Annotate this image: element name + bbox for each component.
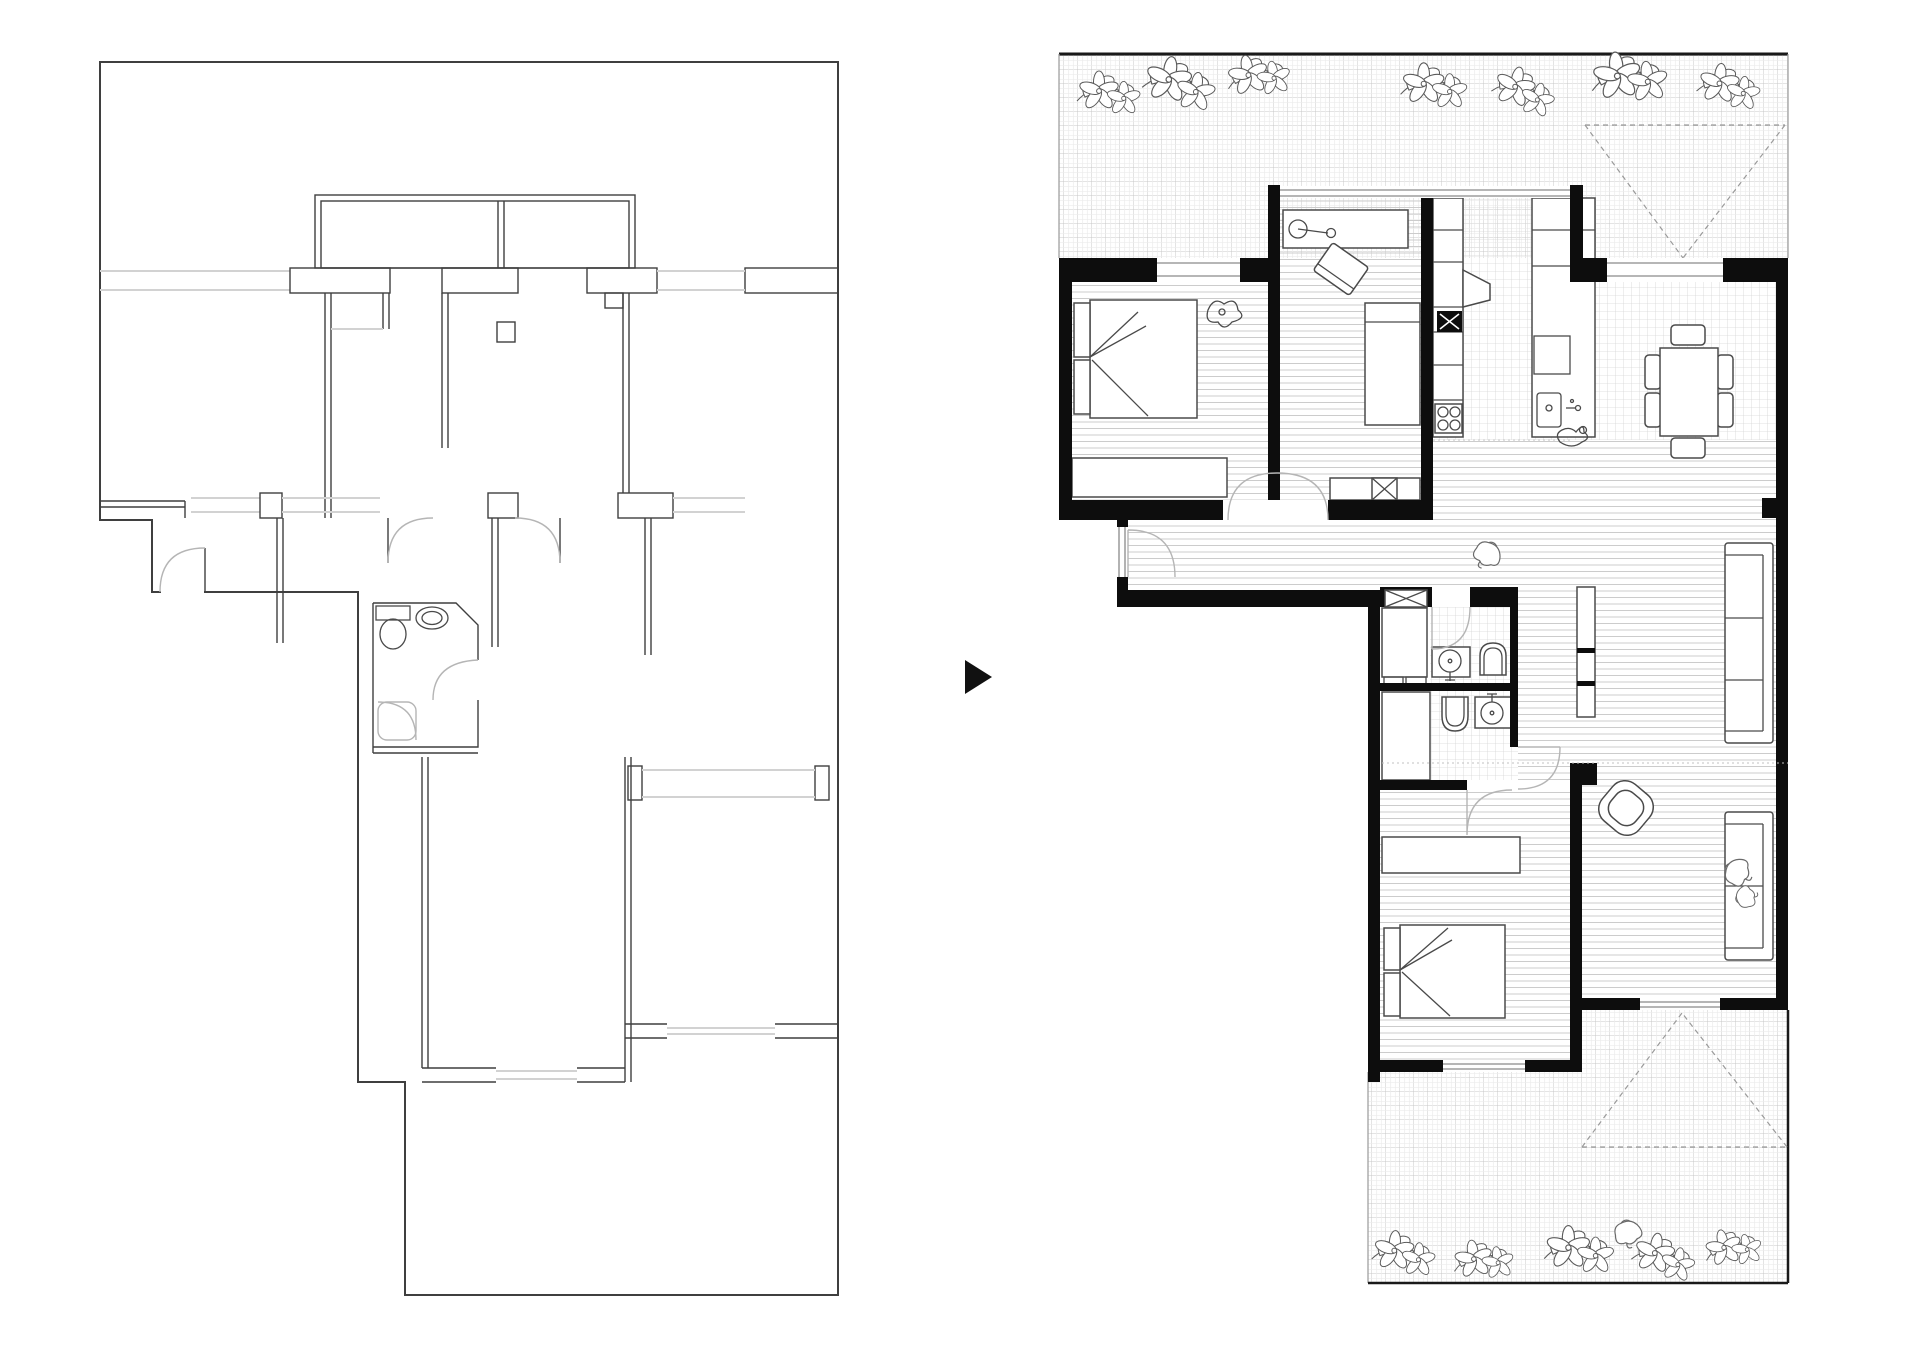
bathroom-existing — [373, 603, 478, 753]
lower-wall-band — [100, 493, 745, 655]
dresser-icon — [1072, 458, 1227, 497]
toilet-tank-icon — [376, 606, 410, 620]
wardrobe-icon — [1382, 692, 1430, 780]
shower-icon — [378, 702, 416, 740]
double-bed-icon — [1400, 925, 1505, 1018]
dresser-icon — [1382, 837, 1520, 873]
washing-machine-x-icon — [1385, 590, 1427, 607]
hob-icon — [1435, 404, 1462, 433]
column-box — [497, 322, 515, 342]
shelf-unit-icon — [1577, 587, 1595, 717]
sink-icon — [416, 607, 448, 629]
toilet-icon — [380, 619, 406, 649]
oven-x-icon — [1437, 311, 1462, 332]
top-middle-room — [315, 195, 635, 268]
entry-door-arc — [160, 548, 205, 592]
outer-boundary — [100, 62, 838, 1295]
screenshot-canvas: Apartment renovation floor plans — exist… — [0, 0, 1920, 1349]
bottom-rooms-existing — [422, 757, 838, 1082]
appliance-x-icon — [1372, 478, 1397, 500]
daybed-icon — [1365, 303, 1420, 425]
double-bed-icon — [1090, 300, 1197, 418]
sofa-icon — [1725, 812, 1773, 960]
corridor-floor — [1128, 520, 1433, 590]
wardrobe-icon — [1382, 608, 1427, 677]
sofa-icon — [1725, 543, 1773, 743]
upper-wall-band — [100, 268, 838, 518]
proposed-floor-plan — [1059, 47, 1788, 1285]
floorplan-diagram: Apartment renovation floor plans — exist… — [0, 0, 1920, 1349]
existing-floor-plan — [100, 62, 838, 1295]
transformation-arrow-icon — [965, 660, 992, 694]
kitchen-island-sink-icon — [1532, 198, 1595, 437]
